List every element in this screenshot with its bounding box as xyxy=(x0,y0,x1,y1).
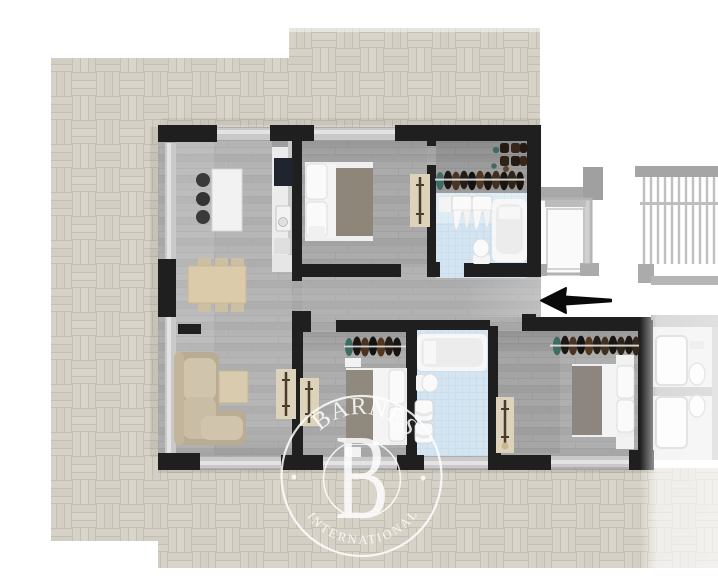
svg-text:B: B xyxy=(335,411,389,546)
